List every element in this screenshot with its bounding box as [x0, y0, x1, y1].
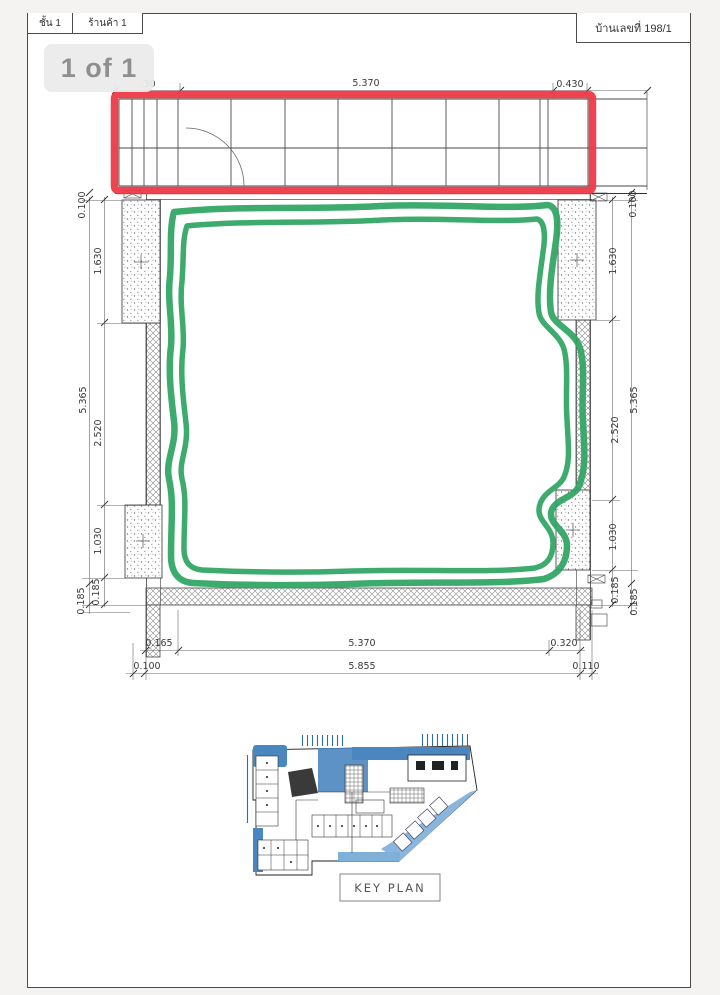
dim-right-base-a: 0.185 — [610, 576, 621, 603]
house-no-label: บ้านเลขที่ 198/1 — [595, 19, 672, 37]
floor-label: ชั้น 1 — [39, 16, 61, 31]
door-swing-arc — [186, 128, 244, 186]
title-block-house-no: บ้านเลขที่ 198/1 — [576, 13, 690, 43]
key-plan-title: KEY PLAN — [340, 874, 440, 901]
dim-top-span: 5.370 — [352, 78, 379, 89]
page-counter-label: 1 of 1 — [61, 53, 138, 84]
dim-right-mid: 2.520 — [610, 416, 621, 443]
dim-right-overall: 5.365 — [629, 386, 640, 413]
red-highlight-annotation — [115, 95, 593, 191]
dim-bottom-right-offset: 0.320 — [550, 638, 577, 649]
dim-left-wall: 0.100 — [77, 191, 88, 218]
title-block-floor: ชั้น 1 — [28, 13, 73, 34]
storefront-glazing — [119, 92, 647, 190]
dim-bottom-span-inner: 5.370 — [348, 638, 375, 649]
title-block-shop: ร้านค้า 1 — [73, 13, 143, 34]
dim-bottom-span-outer: 5.855 — [348, 661, 375, 672]
key-plan-label: KEY PLAN — [354, 881, 426, 895]
dim-left-overall: 5.365 — [78, 386, 89, 413]
dim-bottom-left-offset: 0.165 — [145, 638, 172, 649]
dim-left-base-a: 0.185 — [91, 578, 102, 605]
dim-left-mid: 2.520 — [93, 419, 104, 446]
dim-right-wall: 0.100 — [628, 190, 639, 217]
green-marker-annotation — [168, 205, 584, 585]
dim-bottom-right-edge: 0.110 — [572, 661, 599, 672]
page-counter-badge: 1 of 1 — [44, 44, 154, 92]
floor-plan-drawing: .30 5.370 0.430 0.100 1.630 5.365 2.520 … — [0, 0, 720, 995]
dim-right-col-top: 1.630 — [608, 247, 619, 274]
key-plan-map — [243, 734, 477, 875]
wall-joint-boxes — [124, 190, 607, 583]
dim-right-base-b: 0.185 — [629, 588, 640, 615]
dim-top-right: 0.430 — [556, 79, 583, 90]
dim-right-col-bottom: 1.030 — [608, 523, 619, 550]
shop-label: ร้านค้า 1 — [88, 16, 126, 31]
dim-bottom-left-edge: 0.100 — [133, 661, 160, 672]
column-center-marks — [134, 253, 584, 548]
dim-left-col-bottom: 1.030 — [93, 527, 104, 554]
dim-left-base-b: 0.185 — [76, 587, 87, 614]
concrete-columns — [122, 190, 607, 583]
dim-left-col-top: 1.630 — [93, 247, 104, 274]
